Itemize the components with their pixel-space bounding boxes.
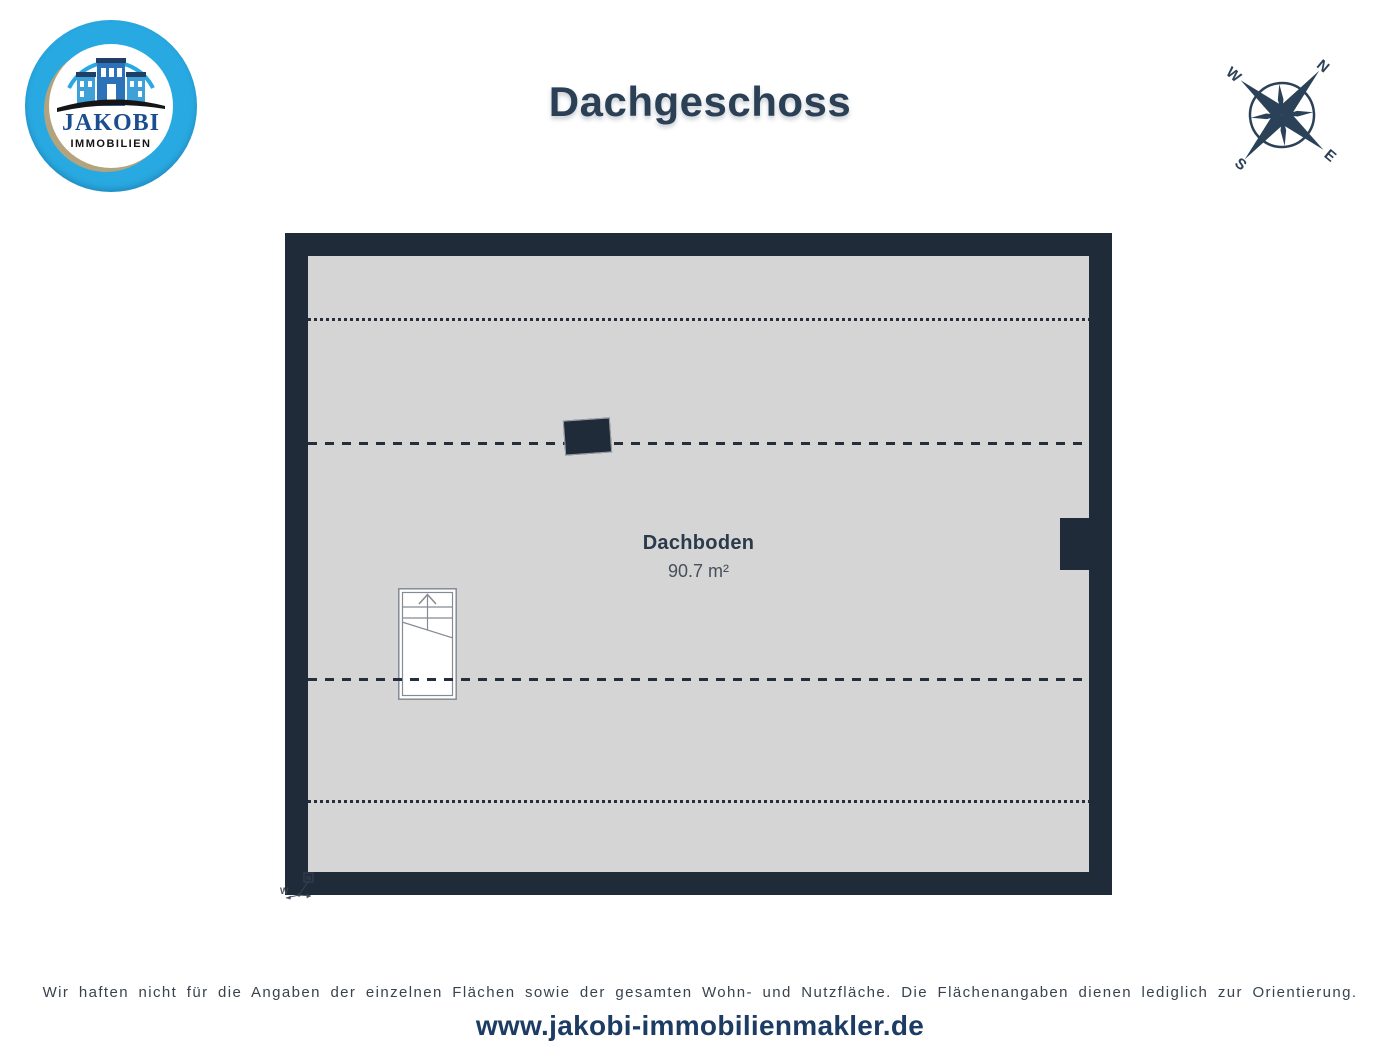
roof-edge-line-top	[308, 318, 1089, 321]
compass-north-label: N	[1313, 56, 1332, 76]
chimney-block	[563, 417, 612, 455]
floorplan: Dachboden 90.7 m² N W	[285, 233, 1112, 895]
disclaimer-text: Wir haften nicht für die Angaben der ein…	[0, 984, 1400, 1001]
mini-compass-icon: N W	[279, 869, 359, 905]
mini-compass-west-label: W	[280, 886, 289, 896]
floorplan-room-dachboden: Dachboden 90.7 m²	[308, 256, 1089, 872]
compass-south-label: S	[1231, 155, 1250, 174]
roof-edge-line-bottom	[308, 800, 1089, 803]
compass-rose-icon: N S E W	[1212, 45, 1352, 185]
logo-subtitle: IMMOBILIEN	[49, 138, 173, 150]
roof-ridge-line-upper	[308, 442, 1089, 445]
room-area: 90.7 m²	[308, 561, 1089, 582]
mini-compass-north-label: N	[306, 876, 311, 883]
page-title: Dachgeschoss	[0, 78, 1400, 126]
room-name: Dachboden	[308, 532, 1089, 555]
roof-ridge-line-lower	[308, 678, 1089, 681]
compass-west-label: W	[1223, 64, 1245, 87]
compass-east-label: E	[1321, 146, 1340, 165]
website-link[interactable]: www.jakobi-immobilienmakler.de	[0, 1010, 1400, 1042]
stairs-icon	[398, 588, 457, 700]
room-label: Dachboden 90.7 m²	[308, 532, 1089, 582]
